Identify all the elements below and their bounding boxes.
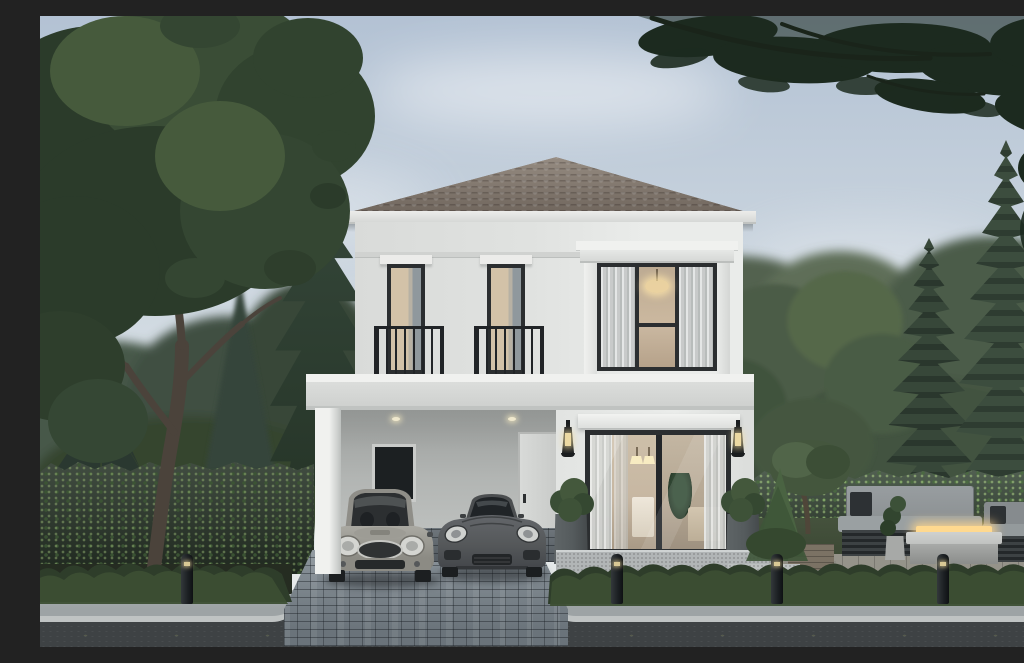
overhanging-pine-branches [40, 16, 1024, 647]
house-exterior-rendering: White two-storey house with a grey-brown… [40, 16, 1024, 647]
